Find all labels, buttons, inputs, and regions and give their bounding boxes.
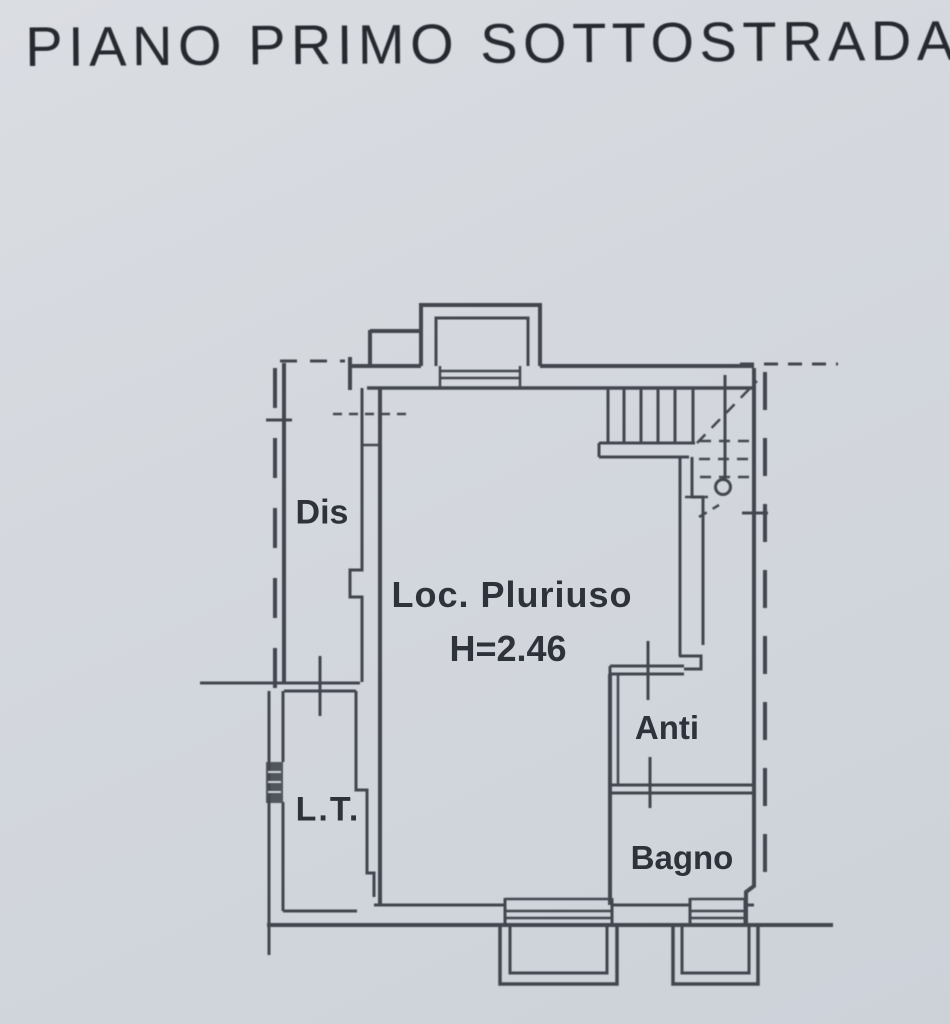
stairs bbox=[599, 381, 757, 517]
room-label-lt: L.T. bbox=[296, 791, 361, 830]
window-wells bbox=[500, 926, 758, 984]
room-height-note: H=2.46 bbox=[449, 628, 566, 670]
room-label-dis: Dis bbox=[296, 494, 349, 533]
floorplan-drawing bbox=[0, 0, 950, 1024]
room-label-anti: Anti bbox=[635, 709, 699, 747]
hatched-door bbox=[266, 762, 283, 803]
scanned-floorplan-page: PIANO PRIMO SOTTOSTRADA bbox=[0, 0, 950, 1024]
room-label-loc-pluriuso: Loc. Pluriuso bbox=[391, 574, 632, 616]
bottom-windows bbox=[505, 898, 745, 925]
top-window-well bbox=[421, 305, 540, 388]
room-label-bagno: Bagno bbox=[631, 839, 734, 877]
